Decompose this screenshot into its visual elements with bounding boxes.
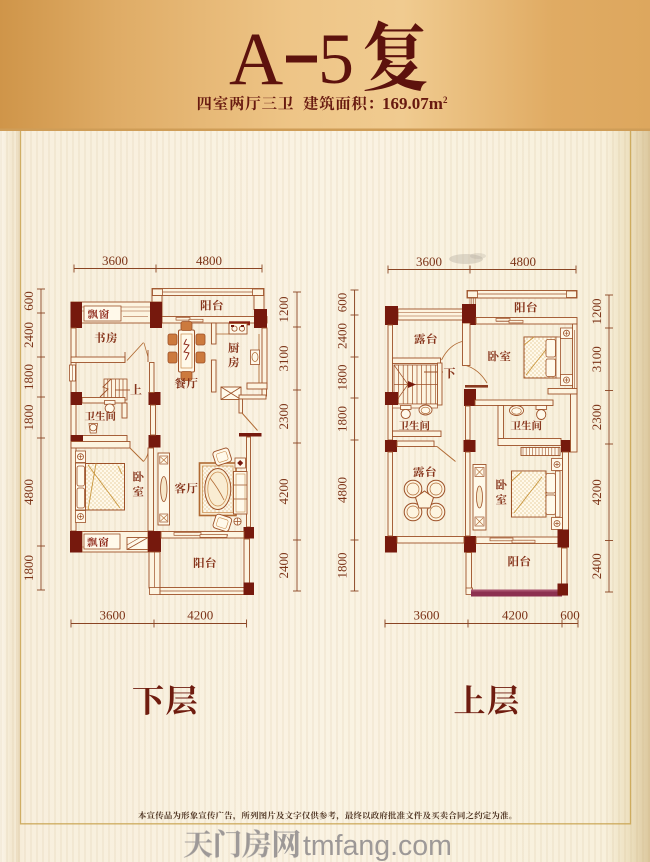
svg-text:600: 600 [335,293,350,313]
svg-text:4800: 4800 [510,254,536,269]
svg-text:2400: 2400 [21,322,36,348]
svg-text:2300: 2300 [589,404,604,430]
svg-text:1800: 1800 [335,553,350,579]
svg-text:4200: 4200 [187,608,213,623]
svg-text:3600: 3600 [100,608,126,623]
svg-text:2400: 2400 [335,323,350,349]
svg-text:3100: 3100 [589,346,604,372]
svg-text:4200: 4200 [589,479,604,505]
svg-text:600: 600 [21,291,36,311]
svg-text:1200: 1200 [276,297,291,323]
svg-text:169.07m: 169.07m [382,94,443,113]
svg-text:4200: 4200 [276,479,291,505]
svg-text:A: A [229,18,283,101]
svg-text:2: 2 [443,95,448,105]
svg-text:3600: 3600 [416,254,442,269]
svg-text:3100: 3100 [276,346,291,372]
svg-text:1800: 1800 [21,555,36,581]
svg-text:tmfang.com: tmfang.com [303,830,452,862]
svg-text:1800: 1800 [21,405,36,431]
svg-text:4800: 4800 [21,479,36,505]
svg-text:1800: 1800 [21,364,36,390]
svg-text:1800: 1800 [335,365,350,391]
svg-text:4800: 4800 [335,477,350,503]
svg-text:3600: 3600 [102,253,128,268]
svg-text:5: 5 [318,19,354,99]
svg-text:4800: 4800 [196,253,222,268]
svg-text:2300: 2300 [276,404,291,430]
svg-text:1200: 1200 [589,299,604,325]
svg-text:2400: 2400 [589,553,604,579]
svg-text:2400: 2400 [276,553,291,579]
svg-text:1800: 1800 [335,406,350,432]
svg-text:4200: 4200 [502,608,528,623]
svg-text:3600: 3600 [414,608,440,623]
svg-text:600: 600 [560,608,580,623]
